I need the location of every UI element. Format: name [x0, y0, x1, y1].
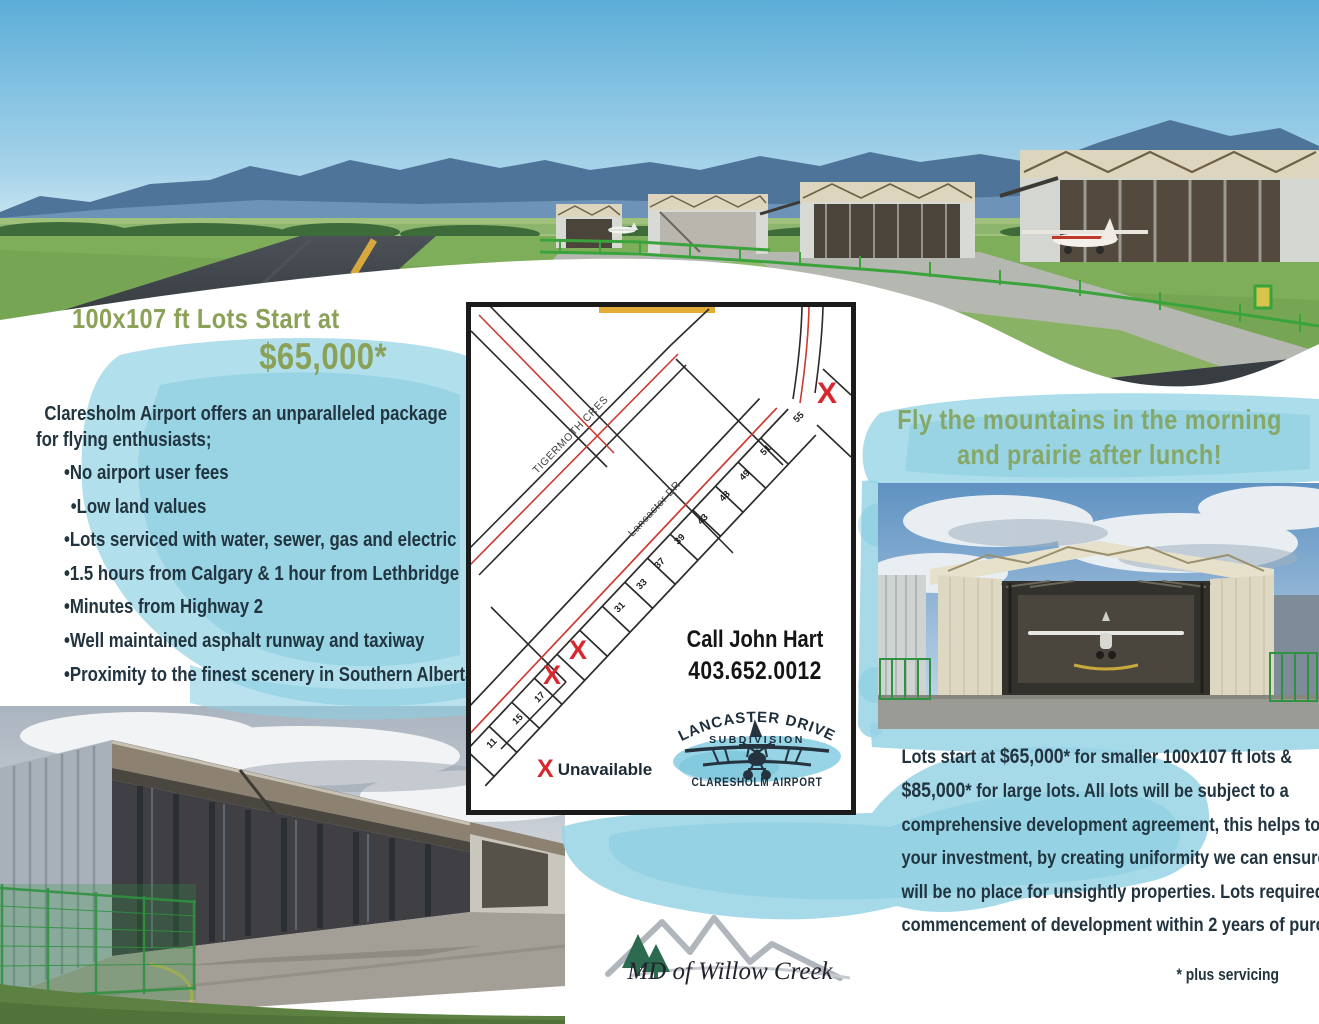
contact-name: Call John Hart: [658, 625, 853, 655]
paragraph-text: Lots start at: [902, 746, 1000, 768]
intro-line-1: Claresholm Airport offers an unparallele…: [36, 401, 447, 427]
willow-creek-logo-text: MD of Willow Creek: [600, 958, 860, 986]
legend-x-symbol: X: [537, 755, 554, 783]
heading-price: $65,000*: [209, 337, 387, 377]
pricing-paragraph: Lots start at $65,000* for smaller 100x1…: [902, 740, 1275, 942]
heading-lots-start: 100x107 ft Lots Start at: [72, 303, 340, 335]
logo-subdivision-text: SUBDIVISION: [669, 734, 845, 746]
price-small-lots: $65,000: [1000, 745, 1064, 768]
intro-line-2: for flying enthusiasts;: [36, 427, 447, 453]
subdivision-map: TIGERMOTH CRES Lancaster DR 11 15 17 31 …: [466, 302, 856, 815]
flyer-page: 100x107 ft Lots Start at $65,000* Clares…: [0, 0, 1319, 1024]
price-large-lots: $85,000: [902, 779, 966, 802]
list-item: •Minutes from Highway 2: [64, 591, 474, 625]
contact-phone: 403.652.0012: [658, 655, 853, 687]
paragraph-text: * for smaller 100x107 ft lots &: [1064, 746, 1293, 768]
list-item: •1.5 hours from Calgary & 1 hour from Le…: [64, 558, 474, 592]
unavailable-x-mark: X: [817, 377, 837, 411]
list-item: •Well maintained asphalt runway and taxi…: [64, 625, 474, 659]
logo-airport-text: CLARESHOLM AIRPORT: [683, 775, 831, 789]
open-hangar-photo: [878, 483, 1319, 729]
heading-fly-mountains-2: and prairie after lunch!: [897, 437, 1283, 472]
list-item: •No airport user fees: [64, 457, 474, 491]
servicing-footnote: * plus servicing: [1177, 966, 1279, 985]
unavailable-x-mark: X: [543, 660, 561, 691]
paragraph-text: your investment, by creating uniformity …: [902, 842, 1275, 875]
intro-text: Claresholm Airport offers an unparallele…: [36, 401, 447, 453]
paragraph-text: will be no place for unsightly propertie…: [902, 876, 1275, 909]
paragraph-text: commencement of development within 2 yea…: [902, 909, 1275, 942]
contact-block: Call John Hart 403.652.0012: [639, 625, 871, 687]
list-item: •Low land values: [64, 491, 474, 525]
list-item: •Lots serviced with water, sewer, gas an…: [64, 524, 474, 558]
paragraph-text: comprehensive development agreement, thi…: [902, 809, 1275, 842]
map-legend: XUnavailable: [537, 755, 652, 784]
heading-fly-mountains: Fly the mountains in the morning: [897, 402, 1283, 437]
list-item: •Proximity to the finest scenery in Sout…: [64, 659, 474, 693]
unavailable-x-mark: X: [569, 635, 587, 666]
legend-label: Unavailable: [558, 760, 653, 779]
paragraph-text: * for large lots. All lots will be subje…: [965, 780, 1288, 802]
subdivision-logo: LANCASTER DRIVE: [669, 695, 845, 795]
features-list: •No airport user fees •Low land values •…: [64, 457, 474, 692]
